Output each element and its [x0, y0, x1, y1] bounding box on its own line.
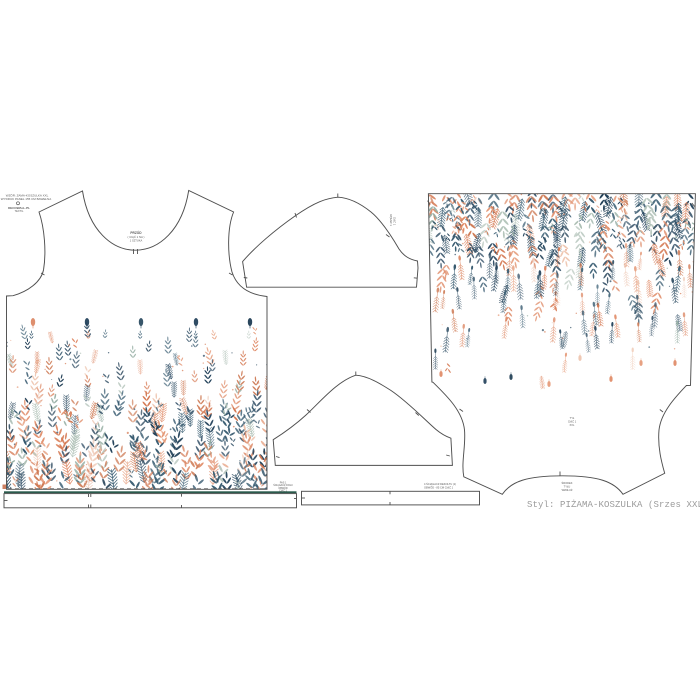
- svg-text:WYDRUK PANEL 155 CM BAWEŁNA: WYDRUK PANEL 155 CM BAWEŁNA: [1, 197, 51, 201]
- svg-text:Styl: PIŻAMA-KOSZULKA (Srzes X: Styl: PIŻAMA-KOSZULKA (Srzes XXL: [527, 499, 700, 510]
- svg-text:1 SZTUKA: 1 SZTUKA: [130, 239, 143, 243]
- svg-text:XXL: XXL: [570, 423, 575, 427]
- svg-text:TYŁU: TYŁU: [564, 485, 571, 489]
- svg-text:RĘKAW 1: RĘKAW 1: [389, 214, 393, 226]
- svg-text:CIĄĆ 1: CIĄĆ 1: [279, 490, 287, 493]
- svg-text:TYŁ: TYŁ: [570, 416, 575, 420]
- svg-text:TEXTIL: TEXTIL: [15, 209, 24, 213]
- svg-text:( CIĄĆ 1 NA ): ( CIĄĆ 1 NA ): [128, 234, 145, 239]
